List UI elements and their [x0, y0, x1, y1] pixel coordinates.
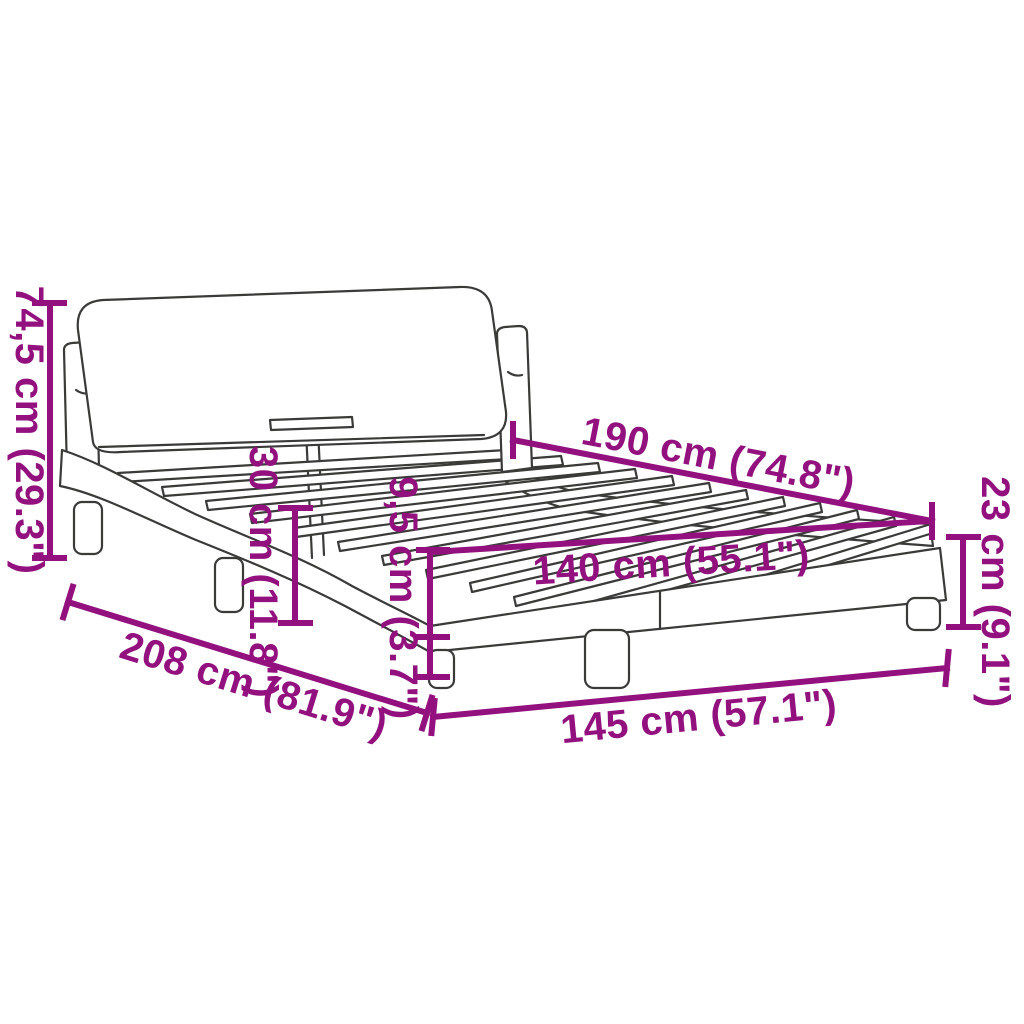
- dim-label-base-height: 23 cm (9.1"): [973, 476, 1017, 708]
- diagram-canvas: 74,5 cm (29.3") 30 cm (11.8") 9,5 cm (3.…: [0, 0, 1024, 1024]
- leg-front-right: [907, 598, 940, 630]
- leg-side-left: [215, 558, 243, 612]
- bed-dimension-diagram: 74,5 cm (29.3") 30 cm (11.8") 9,5 cm (3.…: [0, 0, 1024, 1024]
- dim-label-rail-height: 9,5 cm (3.7"): [381, 476, 425, 719]
- leg-back-left: [74, 502, 102, 554]
- leg-front-middle: [585, 630, 629, 688]
- dim-label-headboard-height: 74,5 cm (29.3"): [7, 286, 51, 575]
- center-support-bar: [270, 417, 353, 430]
